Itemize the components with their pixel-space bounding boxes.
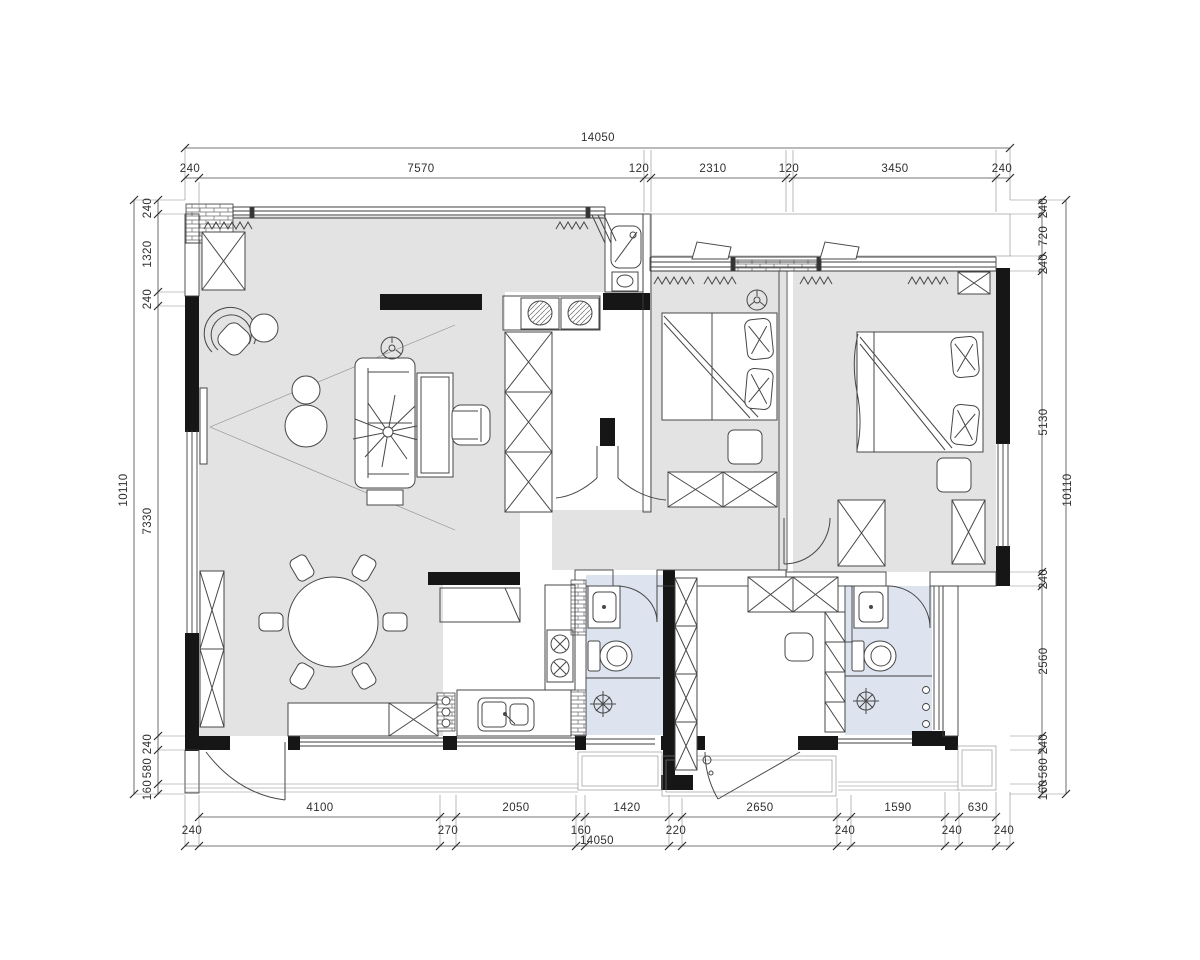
floorplan-sheet: 14050 240 7570 120 2310 120 3450 240 101…: [0, 0, 1200, 960]
dim-left-seg-6: 160: [142, 780, 154, 800]
side-table-icon: [250, 314, 278, 342]
armchair-icon: [452, 405, 490, 445]
dim-bottom-large-1: 2050: [502, 802, 529, 814]
nightstand-icon: [728, 430, 762, 464]
dim-top-seg-2: 120: [629, 163, 649, 175]
washer-icon: [528, 301, 552, 325]
toilet-icon: [588, 641, 632, 671]
bed-icon: [662, 313, 777, 420]
dim-bottom-overall: 14050: [580, 835, 614, 847]
dim-right-overall: 10110: [1062, 473, 1074, 506]
dining-table-icon: [288, 577, 378, 667]
living-cabinet: [200, 571, 224, 727]
dim-bottom-small-5: 240: [942, 825, 962, 837]
nightstand-icon: [937, 458, 971, 492]
tv-icon: [200, 388, 207, 464]
dim-right-seg-2: 240: [1038, 254, 1050, 274]
bath2-shelf: [825, 612, 845, 732]
dim-right-seg-1: 720: [1038, 226, 1050, 246]
dim-left-seg-0: 240: [142, 198, 154, 218]
shoe-cabinet: [748, 577, 838, 612]
balcony-door-arc: [206, 742, 285, 800]
floor-plan-canvas: 14050 240 7570 120 2310 120 3450 240 101…: [0, 0, 1200, 960]
toilet-icon: [852, 641, 896, 671]
dim-right-seg-6: 240: [1038, 734, 1050, 754]
dim-left-seg-3: 7330: [142, 507, 154, 534]
bedroom1-dresser: [668, 472, 777, 507]
stove-icon: [547, 630, 573, 682]
casement-window-icon: [692, 242, 859, 259]
dim-left-seg-1: 1320: [142, 240, 154, 267]
dim-bottom-small-1: 270: [438, 825, 458, 837]
dim-top-overall: 14050: [581, 132, 615, 144]
sideboard: [288, 703, 438, 736]
dim-right-seg-0: 240: [1038, 198, 1050, 218]
bed-icon: [854, 332, 983, 452]
kitchen-tall-cabinet: [505, 332, 552, 512]
dim-bottom-small-0: 240: [182, 825, 202, 837]
dim-right-seg-4: 240: [1038, 569, 1050, 589]
dim-bottom-large-0: 4100: [306, 802, 333, 814]
dim-right-seg-8: 160: [1038, 780, 1050, 800]
pouf-small-icon: [292, 376, 320, 404]
dim-top-seg-1: 7570: [407, 163, 434, 175]
dim-right-seg-5: 2560: [1038, 647, 1050, 674]
dim-top-seg-6: 240: [992, 163, 1012, 175]
coffee-table-icon: [417, 373, 453, 477]
dim-bottom-large-2: 1420: [613, 802, 640, 814]
pouf-large-icon: [285, 405, 327, 447]
corridor-doors-arc: [556, 446, 666, 500]
dim-bottom-small-6: 240: [994, 825, 1014, 837]
stool-icon: [785, 633, 813, 661]
dim-top-seg-3: 2310: [699, 163, 726, 175]
dim-bottom-large-3: 2650: [746, 802, 773, 814]
dim-top-seg-5: 3450: [881, 163, 908, 175]
top-right-cabinet: [958, 272, 990, 294]
dim-left-seg-4: 240: [142, 734, 154, 754]
radiator-icon: [437, 693, 455, 731]
dim-bottom-small-4: 240: [835, 825, 855, 837]
dim-left-overall: 10110: [118, 473, 130, 506]
dim-right-seg-3: 5130: [1038, 408, 1050, 435]
column-cabinet: [202, 232, 245, 290]
dim-left-seg-2: 240: [142, 289, 154, 309]
dim-top-seg-0: 240: [180, 163, 200, 175]
dryer-icon: [568, 301, 592, 325]
dim-bottom-small-3: 220: [666, 825, 686, 837]
dim-left-seg-5: 580: [142, 758, 154, 778]
hall-cabinet: [675, 578, 697, 770]
dim-top-seg-4: 120: [779, 163, 799, 175]
dim-bottom-large-4: 1590: [884, 802, 911, 814]
dim-bottom-large-5: 630: [968, 802, 988, 814]
kitchen-sink-icon: [478, 698, 534, 731]
dim-right-seg-7: 580: [1038, 758, 1050, 778]
